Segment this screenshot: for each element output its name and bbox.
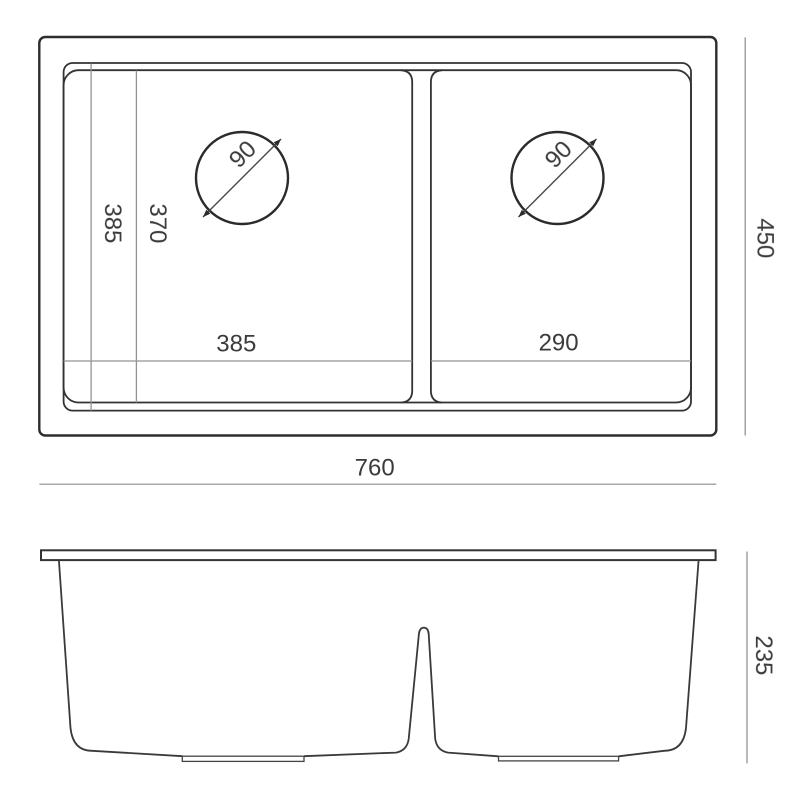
svg-text:760: 760 [355,455,395,482]
svg-text:235: 235 [750,635,777,675]
svg-text:450: 450 [751,218,778,258]
svg-text:385: 385 [216,331,256,358]
svg-text:385: 385 [99,203,126,243]
svg-text:370: 370 [144,203,171,243]
svg-text:290: 290 [539,330,579,357]
